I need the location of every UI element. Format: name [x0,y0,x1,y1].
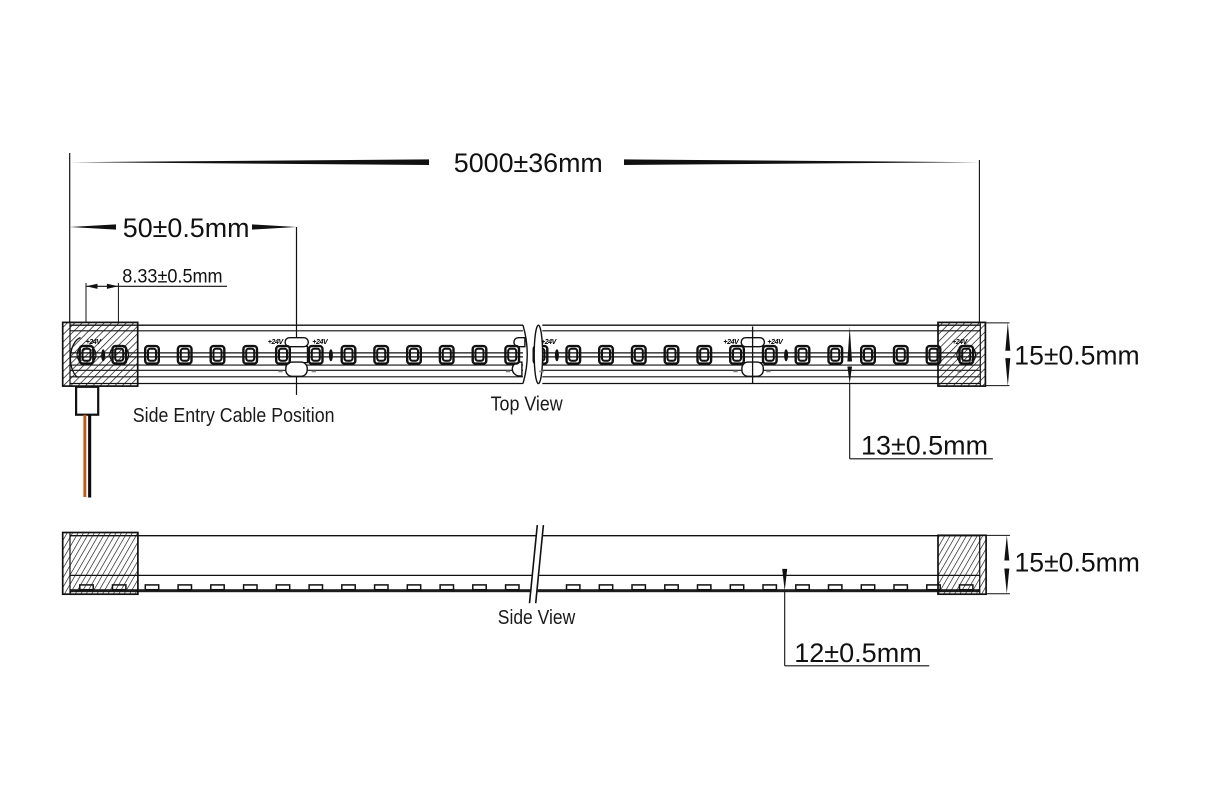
svg-text:12±0.5mm: 12±0.5mm [794,638,922,668]
svg-text:Side Entry Cable Position: Side Entry Cable Position [133,405,335,427]
svg-text:8.33±0.5mm: 8.33±0.5mm [122,266,222,288]
svg-text:Top View: Top View [491,394,564,416]
svg-text:+24V: +24V [767,339,784,346]
svg-text:13±0.5mm: 13±0.5mm [861,431,988,461]
svg-text:Side View: Side View [498,607,576,629]
svg-text:+24V: +24V [312,339,329,346]
svg-text:15±0.5mm: 15±0.5mm [1015,548,1140,578]
svg-text:+24V: +24V [268,339,285,346]
svg-text:15±0.5mm: 15±0.5mm [1014,341,1139,371]
svg-text:50±0.5mm: 50±0.5mm [123,213,250,243]
svg-text:+24V: +24V [541,339,558,346]
svg-text:+24V: +24V [723,339,740,346]
svg-text:5000±36mm: 5000±36mm [454,148,603,178]
